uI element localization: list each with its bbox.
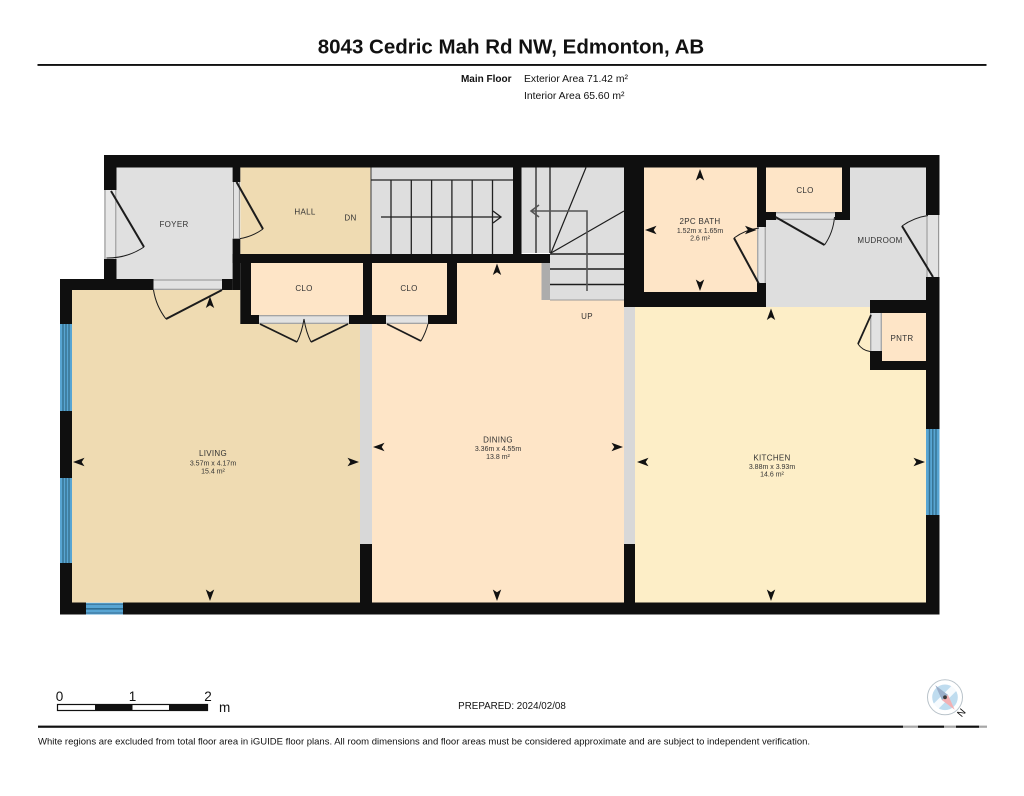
svg-text:2: 2 [204, 689, 212, 704]
svg-text:DINING: DINING [483, 436, 513, 445]
svg-text:m: m [219, 700, 230, 715]
svg-text:CLO: CLO [295, 284, 312, 293]
svg-text:White regions are excluded fro: White regions are excluded from total fl… [38, 737, 810, 748]
svg-text:PREPARED: 2024/02/08: PREPARED: 2024/02/08 [458, 701, 566, 712]
svg-text:CLO: CLO [796, 186, 813, 195]
svg-text:N: N [956, 707, 969, 720]
svg-text:HALL: HALL [294, 208, 315, 217]
svg-text:MUDROOM: MUDROOM [857, 236, 902, 245]
svg-text:8043 Cedric Mah Rd NW, Edmonto: 8043 Cedric Mah Rd NW, Edmonton, AB [318, 36, 705, 59]
svg-text:3.88m x 3.93m: 3.88m x 3.93m [749, 464, 795, 471]
svg-text:15.4 m²: 15.4 m² [201, 469, 225, 476]
svg-text:14.6 m²: 14.6 m² [760, 472, 784, 479]
svg-text:3.36m x 4.55m: 3.36m x 4.55m [475, 446, 521, 453]
svg-text:PNTR: PNTR [891, 334, 914, 343]
svg-text:CLO: CLO [400, 284, 417, 293]
svg-text:1: 1 [129, 689, 137, 704]
svg-text:3.57m x 4.17m: 3.57m x 4.17m [190, 461, 236, 468]
svg-text:FOYER: FOYER [159, 220, 188, 229]
svg-text:1.52m x 1.65m: 1.52m x 1.65m [677, 228, 723, 235]
svg-text:DN: DN [344, 214, 356, 223]
svg-text:UP: UP [581, 312, 593, 321]
svg-text:Interior Area 65.60 m²: Interior Area 65.60 m² [524, 91, 625, 102]
svg-text:Main Floor: Main Floor [461, 74, 512, 85]
svg-text:2.6 m²: 2.6 m² [690, 236, 711, 243]
svg-text:13.8 m²: 13.8 m² [486, 454, 510, 461]
svg-text:KITCHEN: KITCHEN [753, 454, 790, 463]
svg-text:LIVING: LIVING [199, 449, 227, 458]
svg-text:Exterior Area 71.42 m²: Exterior Area 71.42 m² [524, 74, 628, 85]
svg-text:2PC BATH: 2PC BATH [680, 217, 721, 226]
svg-text:0: 0 [56, 689, 64, 704]
